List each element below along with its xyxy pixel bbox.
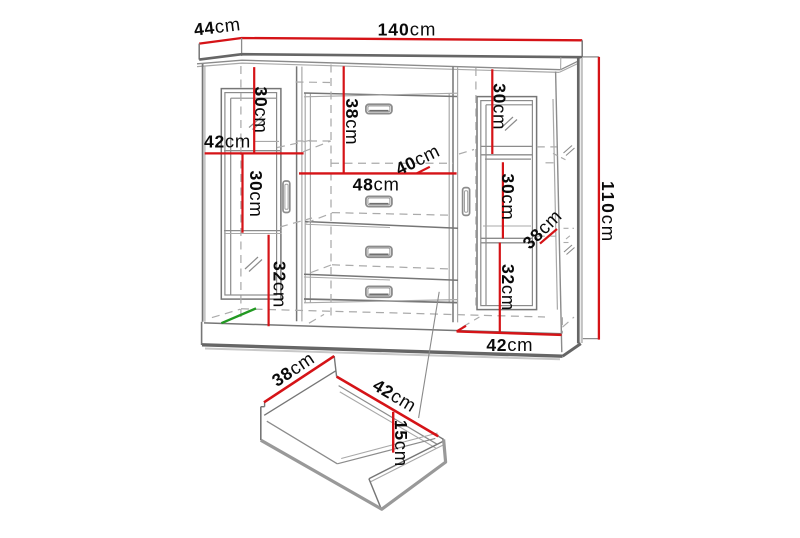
svg-text:30cm: 30cm [246, 171, 267, 218]
svg-text:42cm: 42cm [486, 334, 533, 355]
svg-text:38cm: 38cm [342, 98, 363, 145]
svg-text:30cm: 30cm [498, 174, 519, 221]
svg-text:110cm: 110cm [598, 181, 619, 243]
svg-text:140cm: 140cm [378, 18, 437, 39]
svg-text:32cm: 32cm [270, 261, 291, 308]
svg-text:30cm: 30cm [489, 83, 510, 130]
svg-text:32cm: 32cm [498, 264, 519, 311]
svg-text:48cm: 48cm [353, 173, 400, 194]
svg-text:30cm: 30cm [251, 87, 272, 134]
svg-text:15cm: 15cm [391, 420, 412, 467]
svg-text:42cm: 42cm [204, 130, 251, 151]
